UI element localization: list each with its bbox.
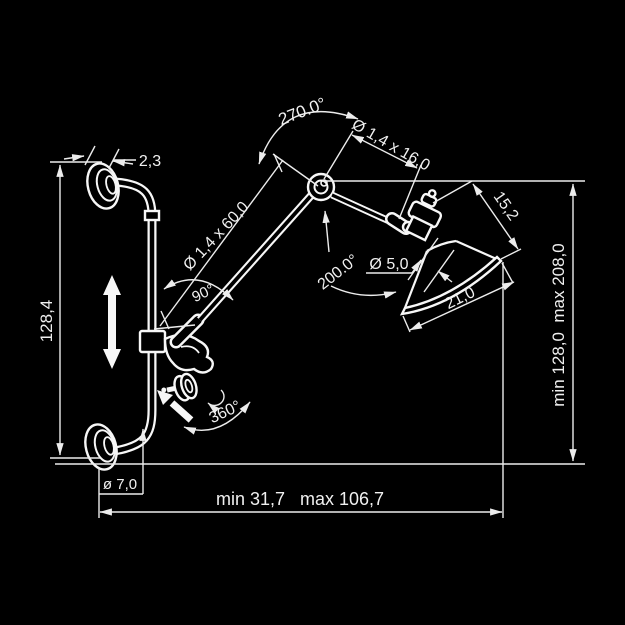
horizontal-reach-label: min 31,7 max 106,7 [216, 489, 384, 509]
knob-rotation-icon [208, 390, 224, 405]
wall-plate-bottom [81, 421, 122, 473]
forearm-rod-label: Ø 1,4 x 16,0 [349, 116, 433, 174]
extension-line [433, 181, 472, 203]
arc-arrow [259, 112, 358, 164]
technical-drawing-canvas: 360° 2,3 128,4 ø 7,0 min 31,7 max 106,7 … [0, 0, 625, 625]
dim-bar-length: 128,4 [37, 162, 102, 458]
plate-diameter-label: ø 7,0 [103, 476, 137, 493]
bar-coupling [145, 211, 159, 220]
bar-length-label: 128,4 [37, 300, 56, 343]
bar-swivel-label: 360° [207, 398, 244, 427]
dim-vertical-reach: min 128,0 max 208,0 [322, 181, 585, 461]
tick [109, 149, 119, 168]
socket-top-pin [428, 189, 437, 198]
extension-line [501, 249, 521, 259]
tick [161, 311, 169, 329]
up-down-motion-arrow [103, 275, 121, 369]
swivel-arrow-head [157, 390, 173, 405]
slider-clamp [140, 331, 165, 352]
vertical-reach-label: min 128,0 max 208,0 [549, 243, 568, 406]
elbow-swing-label: 270.0° [276, 94, 329, 129]
mounting-bar [114, 182, 152, 451]
mounting-bar-inner [114, 182, 152, 451]
socket-diameter-label: Ø 5,0 [369, 256, 408, 273]
head-swing-label: 200.0° [315, 251, 362, 293]
arc-arrow [331, 286, 396, 295]
dim-arm-rod: Ø 1,4 x 60,0 [154, 154, 318, 329]
extension-line [403, 316, 410, 332]
wall-plate-top [83, 160, 124, 212]
swivel-arrow-shaft [172, 403, 191, 420]
leader-arrow [325, 211, 329, 252]
dim-elbow-swing: 270.0° [259, 94, 358, 164]
arrow-line [113, 161, 133, 164]
wall-lamp-dimension-drawing: 360° 2,3 128,4 ø 7,0 min 31,7 max 106,7 … [0, 0, 625, 625]
upper-arm-rod-inner [200, 190, 316, 320]
dim-plate-thickness: 2,3 [64, 146, 161, 170]
extension-line [324, 131, 353, 179]
plate-thickness-label: 2,3 [139, 153, 161, 170]
arrow-line [64, 156, 84, 159]
arm-rod-label: Ø 1,4 x 60,0 [180, 199, 252, 274]
dim-head-swing: 200.0° [315, 211, 396, 295]
shade-depth-label: 15,2 [490, 189, 522, 224]
extension-line [273, 154, 318, 186]
elbow-joint [308, 174, 334, 200]
